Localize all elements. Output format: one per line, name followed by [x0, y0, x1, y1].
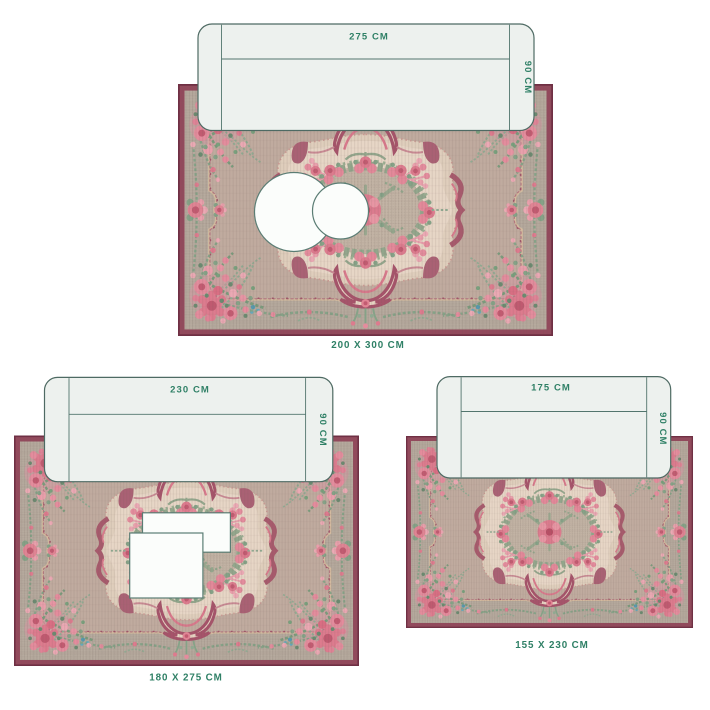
svg-text:90 CM: 90 CM [522, 61, 533, 94]
svg-text:90 CM: 90 CM [317, 413, 328, 446]
svg-text:90 CM: 90 CM [657, 412, 668, 445]
svg-text:175 CM: 175 CM [531, 383, 571, 394]
svg-text:200 X 300 CM: 200 X 300 CM [331, 340, 404, 351]
svg-text:155 X 230 CM: 155 X 230 CM [515, 640, 588, 651]
svg-text:180 X 275 CM: 180 X 275 CM [149, 673, 222, 684]
svg-text:275 CM: 275 CM [349, 32, 389, 43]
svg-text:230 CM: 230 CM [170, 385, 210, 396]
